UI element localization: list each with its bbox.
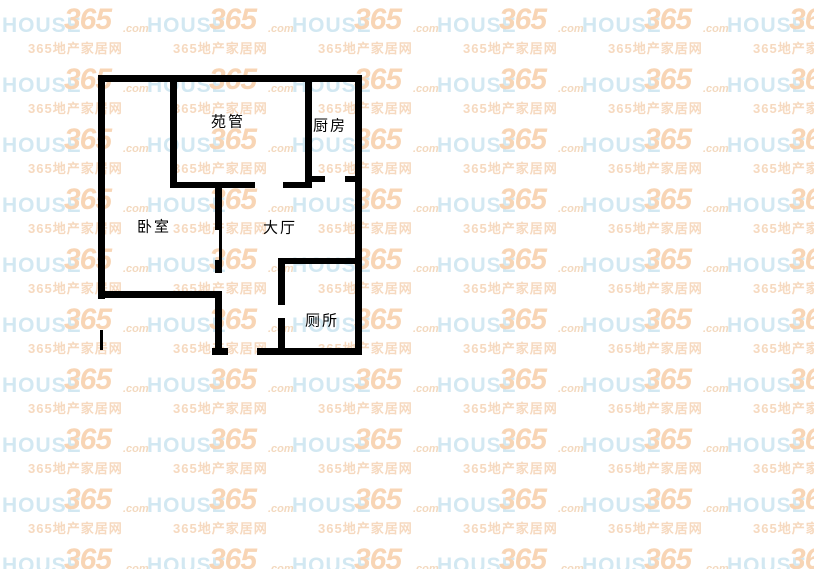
- floorplan-image: HOUSE365.com365地产家居网HOUSE365.com365地产家居网…: [0, 0, 814, 569]
- wall-divider-door-leaf: [219, 230, 222, 260]
- wall-kitchen-bottom-right: [345, 176, 355, 182]
- wall-study-bottom-left: [170, 182, 255, 188]
- wall-outer-right: [355, 75, 362, 355]
- room-label-bedroom: 卧室: [137, 216, 171, 237]
- wall-divider-mid: [215, 260, 222, 273]
- wall-toilet-top: [278, 258, 362, 264]
- room-label-study: 苑管: [211, 111, 245, 132]
- room-label-hall: 大厅: [263, 217, 297, 238]
- room-label-toilet: 厕所: [305, 310, 339, 331]
- wall-stray-tick: [100, 330, 103, 350]
- wall-kitchen-bottom-left: [312, 176, 325, 182]
- wall-kitchen-left: [305, 82, 312, 182]
- wall-toilet-left-lower: [278, 318, 285, 355]
- wall-divider-lower: [215, 291, 222, 355]
- room-label-kitchen: 厨房: [313, 115, 347, 136]
- wall-study-left: [170, 82, 177, 188]
- floorplan-layer: 苑管厨房卧室大厅厕所: [0, 0, 814, 569]
- wall-bottom-main: [257, 348, 362, 355]
- wall-outer-left: [98, 75, 105, 299]
- wall-divider-upper: [215, 188, 222, 230]
- wall-study-bottom-right: [283, 182, 312, 188]
- wall-outer-top: [98, 75, 362, 82]
- wall-toilet-left-upper: [278, 258, 285, 305]
- wall-bedroom-bottom: [98, 291, 222, 298]
